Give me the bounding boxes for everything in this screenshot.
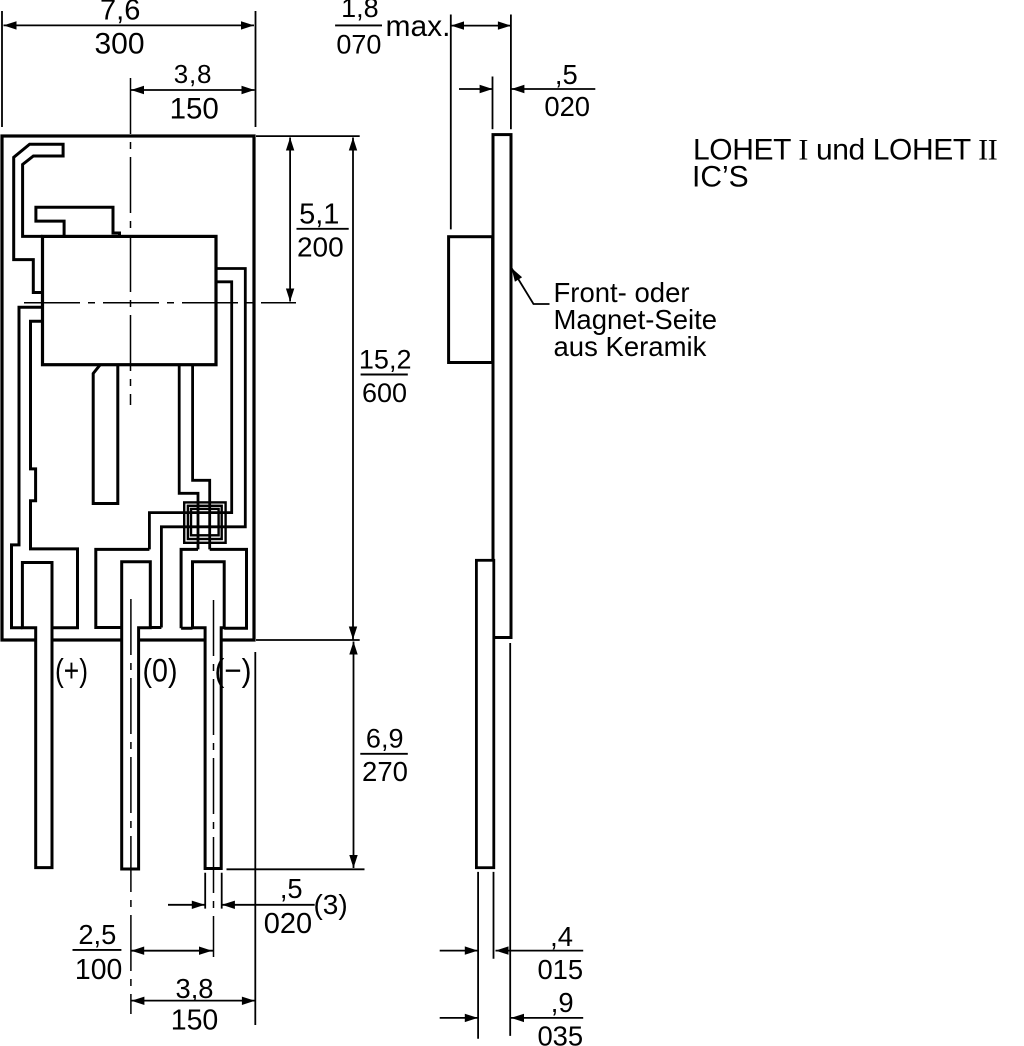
svg-text:2,5: 2,5	[78, 919, 116, 950]
svg-text:7,6: 7,6	[100, 0, 140, 27]
svg-text:3,8: 3,8	[174, 59, 213, 89]
svg-text:015: 015	[537, 954, 583, 985]
svg-text:035: 035	[537, 1021, 583, 1046]
svg-text:070: 070	[336, 29, 381, 59]
svg-text:max.: max.	[386, 10, 451, 43]
svg-text:(3): (3)	[313, 889, 347, 920]
svg-text:020: 020	[264, 908, 312, 940]
svg-text:600: 600	[362, 378, 407, 408]
svg-text:,9: ,9	[551, 987, 574, 1018]
svg-text:150: 150	[171, 1005, 219, 1037]
svg-text:,4: ,4	[550, 921, 573, 952]
svg-text:020: 020	[544, 91, 590, 122]
svg-text:aus Keramik: aus Keramik	[554, 331, 707, 362]
svg-text:3,8: 3,8	[176, 973, 214, 1004]
svg-text:(+): (+)	[55, 653, 88, 689]
svg-text:,5: ,5	[280, 873, 303, 904]
svg-text:200: 200	[297, 232, 344, 263]
svg-text:6,9: 6,9	[366, 724, 404, 754]
svg-text:IC’S: IC’S	[692, 160, 749, 193]
svg-text:15,2: 15,2	[359, 345, 412, 375]
svg-text:5,1: 5,1	[299, 198, 339, 230]
svg-text:(0): (0)	[143, 653, 178, 689]
svg-text:(−): (−)	[215, 653, 252, 689]
svg-text:270: 270	[362, 756, 408, 787]
svg-text:100: 100	[75, 954, 122, 986]
svg-text:300: 300	[94, 27, 144, 60]
svg-text:150: 150	[170, 92, 219, 125]
svg-text:1,8: 1,8	[341, 0, 379, 23]
svg-text:,5: ,5	[555, 59, 578, 90]
